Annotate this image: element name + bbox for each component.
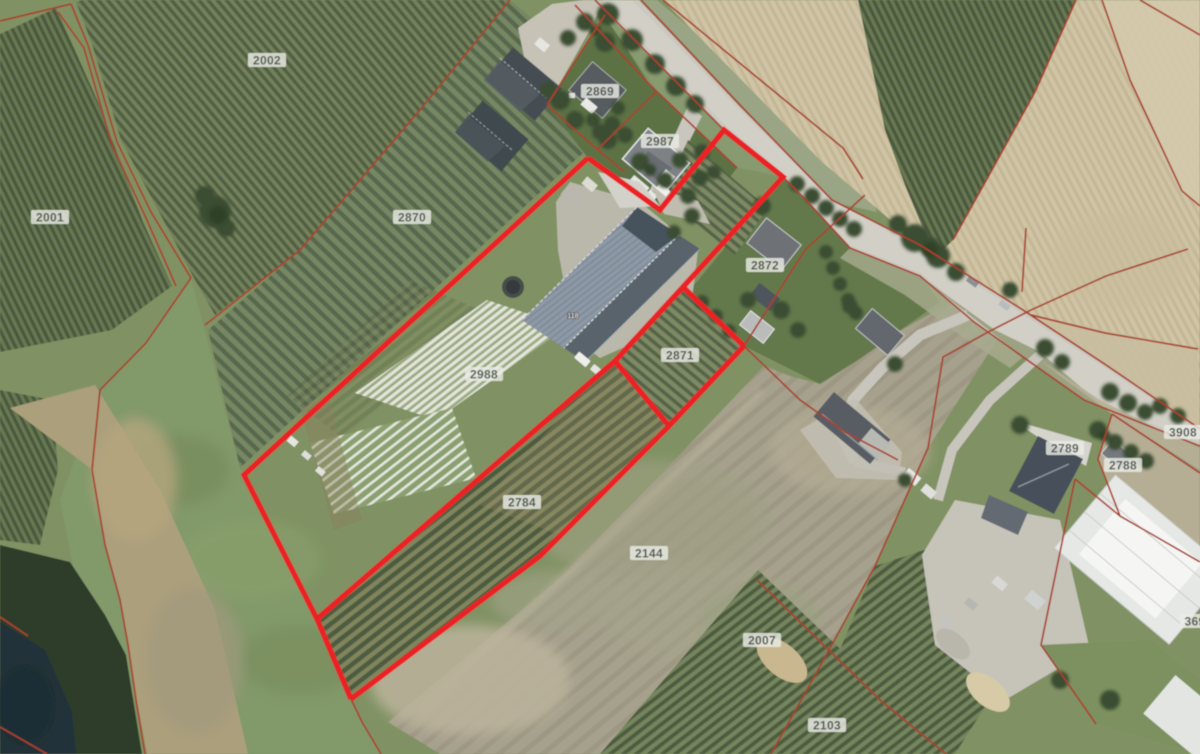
svg-text:2002: 2002 [253,54,281,68]
svg-text:3908: 3908 [1169,426,1197,440]
svg-text:118: 118 [567,313,578,320]
svg-text:2872: 2872 [751,259,779,273]
svg-text:2788: 2788 [1109,459,1137,473]
svg-text:2144: 2144 [635,547,663,561]
svg-text:2007: 2007 [748,634,776,648]
svg-text:2789: 2789 [1051,442,1079,456]
svg-text:2001: 2001 [36,211,64,225]
svg-text:2103: 2103 [813,719,841,733]
svg-text:369: 369 [1185,615,1200,629]
svg-text:2870: 2870 [398,211,426,225]
svg-text:2987: 2987 [646,135,674,149]
svg-text:2784: 2784 [508,496,536,510]
svg-text:2869: 2869 [586,85,614,99]
svg-text:2988: 2988 [470,368,498,382]
svg-text:2871: 2871 [666,349,694,363]
